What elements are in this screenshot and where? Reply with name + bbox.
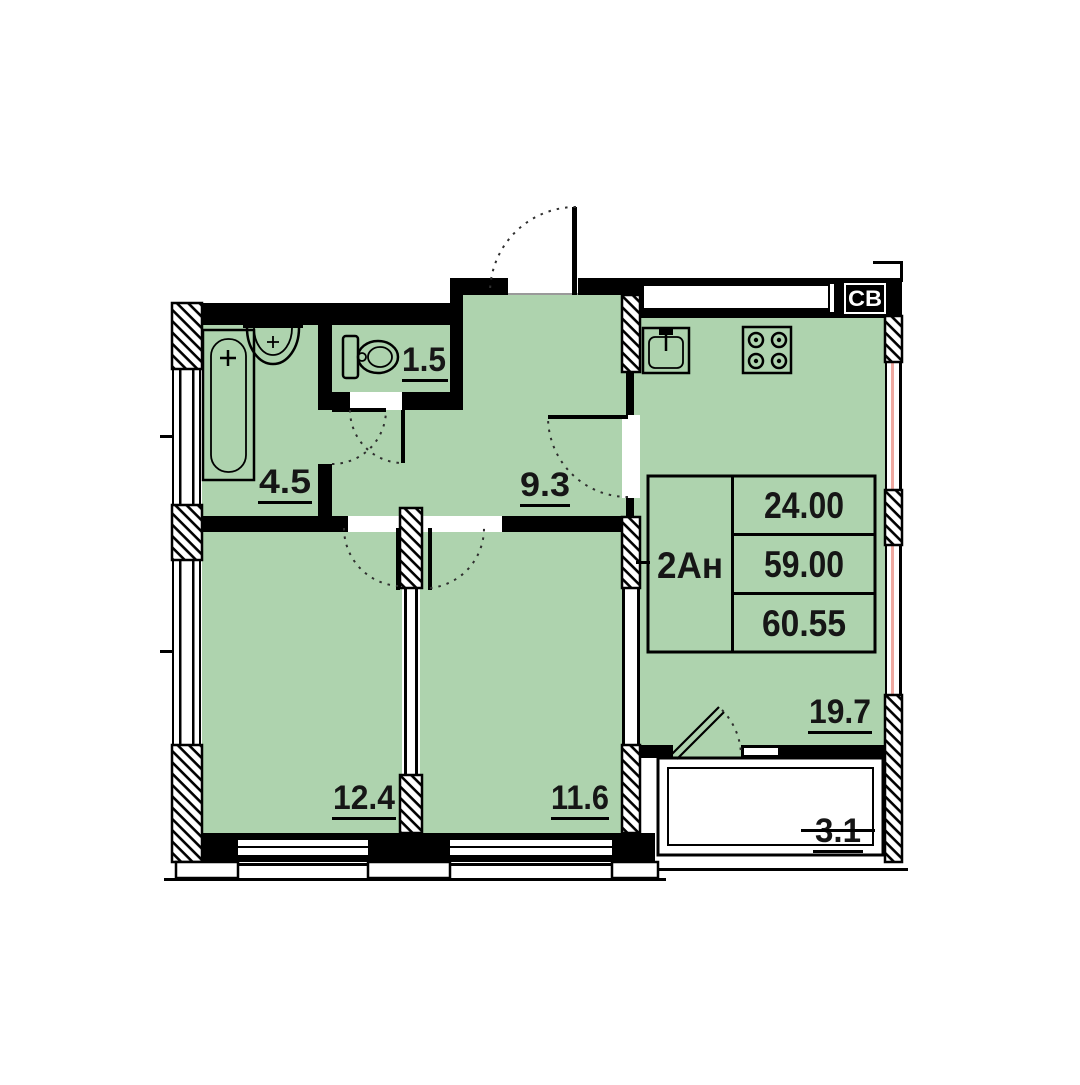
bedroom-1-area-value: 12.4 — [333, 779, 395, 817]
area-label-hallway: 9.3 — [520, 466, 570, 507]
floor-plan-page: СВ — [0, 0, 1080, 1080]
area-label-wc: 1.5 — [402, 341, 448, 382]
vent-shaft-label: СВ — [848, 286, 882, 311]
table-value-apartment-area: 59.00 — [764, 544, 844, 585]
wc-area-value: 1.5 — [402, 341, 446, 379]
hallway-area-value: 9.3 — [520, 466, 570, 504]
table-value-total-area: 60.55 — [762, 603, 846, 644]
kitchen-living-area-value: 19.7 — [809, 693, 871, 731]
bathroom-area-value: 4.5 — [259, 463, 311, 501]
floor-plan-svg: СВ — [0, 0, 1080, 1080]
area-label-bathroom: 4.5 — [258, 463, 312, 504]
area-label-bedroom-1: 12.4 — [332, 779, 396, 820]
info-table: 2Ан 24.00 59.00 60.55 — [636, 476, 875, 652]
area-label-kitchen-living: 19.7 — [808, 693, 872, 734]
bedroom-2-area-value: 11.6 — [551, 779, 609, 817]
unit-type-label: 2Ан — [657, 545, 723, 586]
balcony-railing — [650, 758, 908, 871]
window-sills — [164, 862, 666, 881]
area-label-bedroom-2: 11.6 — [551, 779, 609, 820]
table-value-living-area: 24.00 — [764, 485, 844, 526]
vent-shaft: СВ — [845, 284, 885, 313]
